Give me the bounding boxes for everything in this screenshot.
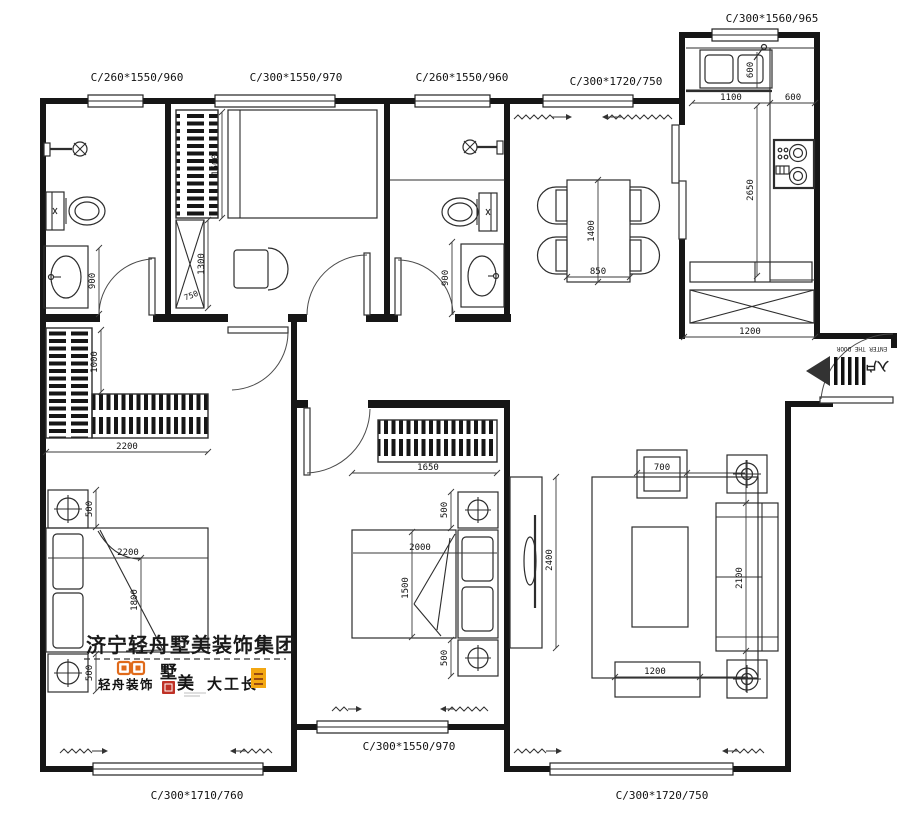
entry-label-cn: 入户 <box>865 359 889 374</box>
chair-icon <box>630 237 660 274</box>
curtain-icon <box>332 706 488 712</box>
svg-text:1300: 1300 <box>197 253 207 275</box>
svg-text:1200: 1200 <box>739 327 761 337</box>
door-bedroom2 <box>307 253 370 315</box>
bed <box>228 110 377 218</box>
entry-label-en: ENTER THE DOOR <box>836 345 887 352</box>
kitchen: 600 1100 600 2650 1200 <box>681 45 818 341</box>
entry-door-leaf <box>820 397 893 403</box>
svg-text:2650: 2650 <box>746 179 756 201</box>
svg-text:2200: 2200 <box>117 548 139 558</box>
dim-cabinet-1200: 1200 <box>681 327 818 340</box>
entry-arrow-icon <box>806 356 830 386</box>
dim-cab2-750: 750 <box>183 289 200 302</box>
dim-table-850: 850 <box>564 267 633 280</box>
svg-text:1500: 1500 <box>211 154 221 176</box>
svg-text:600: 600 <box>785 93 801 103</box>
dim-wardrobe-1650: 1650 <box>349 463 500 476</box>
chair-seat <box>556 240 567 271</box>
dim-bed-2200: 2200 <box>48 548 208 558</box>
svg-text:1500: 1500 <box>401 577 411 599</box>
armchair-icon <box>637 450 687 498</box>
window-label: C/260*1550/960 <box>91 71 184 84</box>
window-living-bottom: C/300*1720/750 <box>550 763 733 802</box>
chair-icon <box>630 187 660 224</box>
svg-text:2200: 2200 <box>116 442 138 452</box>
svg-text:600: 600 <box>746 62 756 78</box>
dim-counter-1100: 1100 <box>689 93 773 106</box>
svg-text:1100: 1100 <box>720 93 742 103</box>
window-label: C/300*1550/970 <box>250 71 343 84</box>
chair-icon <box>538 237 568 274</box>
dagongzhang-logo: 大工长 <box>207 668 266 693</box>
armchair-icon <box>234 248 288 290</box>
chair-seat <box>630 240 641 271</box>
window-label: C/300*1550/970 <box>363 740 456 753</box>
door-bedroom3 <box>304 408 370 475</box>
chair-seat <box>630 190 641 221</box>
window-label: C/300*1720/750 <box>616 789 709 802</box>
dim-ns-500-top: 500 <box>440 489 454 531</box>
svg-text:500: 500 <box>440 650 450 666</box>
door-master <box>228 327 288 390</box>
dim-counter-600: 600 <box>770 93 818 106</box>
svg-text:1000: 1000 <box>90 351 100 373</box>
svg-text:500: 500 <box>85 501 95 517</box>
chair-seat <box>556 190 567 221</box>
svg-text:700: 700 <box>654 463 670 473</box>
tv-cabinet <box>510 477 542 648</box>
sink-icon <box>44 246 88 308</box>
window-bedroom3-bottom: C/300*1550/970 <box>317 721 455 753</box>
mei-char: 美 <box>177 673 195 694</box>
badge-icon <box>251 668 266 688</box>
bedroom-middle: 1650 500 2000 1500 <box>332 420 500 712</box>
svg-text:500: 500 <box>440 502 450 518</box>
shu-char: 墅 <box>160 663 177 683</box>
window-label: C/300*1560/965 <box>726 12 819 25</box>
shower-icon <box>463 140 503 154</box>
bedroom-top: 1500 1300 750 <box>176 109 377 311</box>
kitchen-sink-icon <box>700 45 772 89</box>
window-bedroom2-top: C/300*1550/970 <box>215 71 342 107</box>
svg-text:2100: 2100 <box>735 567 745 589</box>
curtain-icon <box>60 748 272 754</box>
toilet-icon <box>46 192 105 230</box>
window-master-bottom: C/300*1710/760 <box>93 763 263 802</box>
dim-wardrobe-2200: 2200 <box>43 442 211 455</box>
chair-icon <box>538 187 568 224</box>
wardrobe <box>378 420 497 462</box>
bathroom-1: 900 <box>44 142 105 317</box>
curtain-icon <box>514 114 672 120</box>
sliding-door-panel <box>679 181 686 239</box>
nightstand <box>48 654 88 692</box>
watermark-logos: 济宁轻舟墅美装饰集团 轻舟装饰 墅 美 大工长 <box>84 633 296 696</box>
svg-text:2400: 2400 <box>545 549 555 571</box>
dining-room: 1400 850 <box>514 114 672 285</box>
dim-ns-500-bottom: 500 <box>440 637 454 679</box>
kitchen-base-cabinet <box>690 262 812 282</box>
door-bath1 <box>99 258 155 315</box>
qingzhou-logo-icon <box>118 662 144 674</box>
nightstand <box>458 492 498 528</box>
dim-counter-2650: 2650 <box>746 103 760 279</box>
dim-sofa-2100: 2100 <box>735 460 749 692</box>
window-label: C/260*1550/960 <box>416 71 509 84</box>
dim-ns-500-bottom: 500 <box>85 651 99 694</box>
svg-text:900: 900 <box>88 273 98 289</box>
stove-icon <box>774 140 814 188</box>
dim-tv-2400: 2400 <box>545 474 559 651</box>
svg-text:900: 900 <box>441 270 451 286</box>
living-room: 2400 700 2100 <box>510 450 778 754</box>
wardrobe <box>46 328 208 438</box>
floor-plan-page: C/260*1550/960 C/300*1550/970 C/260*1550… <box>0 0 900 828</box>
nightstand <box>458 640 498 676</box>
svg-text:1650: 1650 <box>417 463 439 473</box>
dagongzhang-text: 大工长 <box>207 675 258 693</box>
dim-bath2-900: 900 <box>441 239 455 317</box>
sliding-door-panel <box>672 125 679 183</box>
dim-bed-2000: 2000 <box>353 543 497 553</box>
svg-text:1200: 1200 <box>644 667 666 677</box>
toilet-icon <box>442 193 497 231</box>
side-table <box>727 660 767 698</box>
seal-icon <box>162 681 175 694</box>
floor-plan-canvas: C/260*1550/960 C/300*1550/970 C/260*1550… <box>0 0 900 828</box>
curtain-icon <box>514 748 764 754</box>
cabinet-x <box>690 290 814 323</box>
sofa <box>716 503 778 651</box>
svg-text:1400: 1400 <box>587 220 597 242</box>
svg-text:1800: 1800 <box>130 589 140 611</box>
coffee-table <box>632 527 688 627</box>
shumei-logo: 墅 美 <box>160 663 206 696</box>
svg-text:850: 850 <box>590 267 606 277</box>
company-watermark: 济宁轻舟墅美装饰集团 <box>86 633 296 657</box>
svg-text:500: 500 <box>85 665 95 681</box>
window-label: C/300*1710/760 <box>151 789 244 802</box>
dim-ns-500-top: 500 <box>85 487 99 530</box>
nightstand <box>48 490 88 528</box>
window-label: C/300*1720/750 <box>570 75 663 88</box>
entry: 入户 ENTER THE DOOR <box>806 334 893 403</box>
sink-icon <box>461 244 504 307</box>
side-table <box>727 455 767 493</box>
shower-icon <box>44 142 87 156</box>
qingzhou-logo-text: 轻舟装饰 <box>98 677 154 692</box>
dim-armchair-700: 700 <box>634 463 745 476</box>
